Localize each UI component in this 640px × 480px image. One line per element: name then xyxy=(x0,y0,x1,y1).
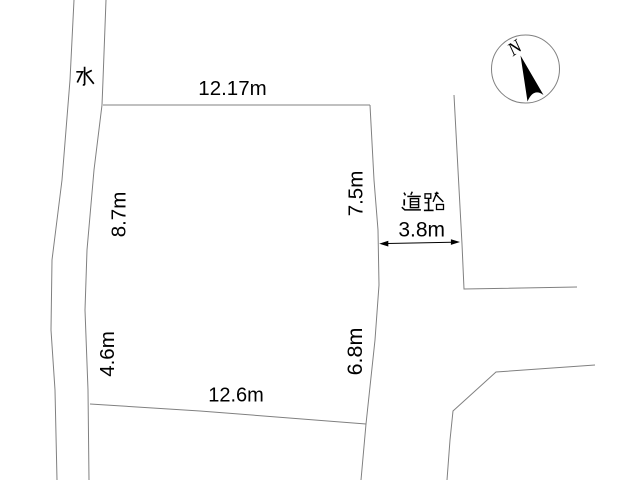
svg-text:3.8m: 3.8m xyxy=(398,219,445,242)
svg-text:12.17m: 12.17m xyxy=(198,77,266,100)
svg-text:7.5m: 7.5m xyxy=(345,171,368,217)
svg-text:12.6m: 12.6m xyxy=(208,385,264,407)
svg-text:8.7m: 8.7m xyxy=(108,192,131,238)
svg-text:6.8m: 6.8m xyxy=(343,328,367,376)
svg-text:4.6m: 4.6m xyxy=(96,331,119,377)
